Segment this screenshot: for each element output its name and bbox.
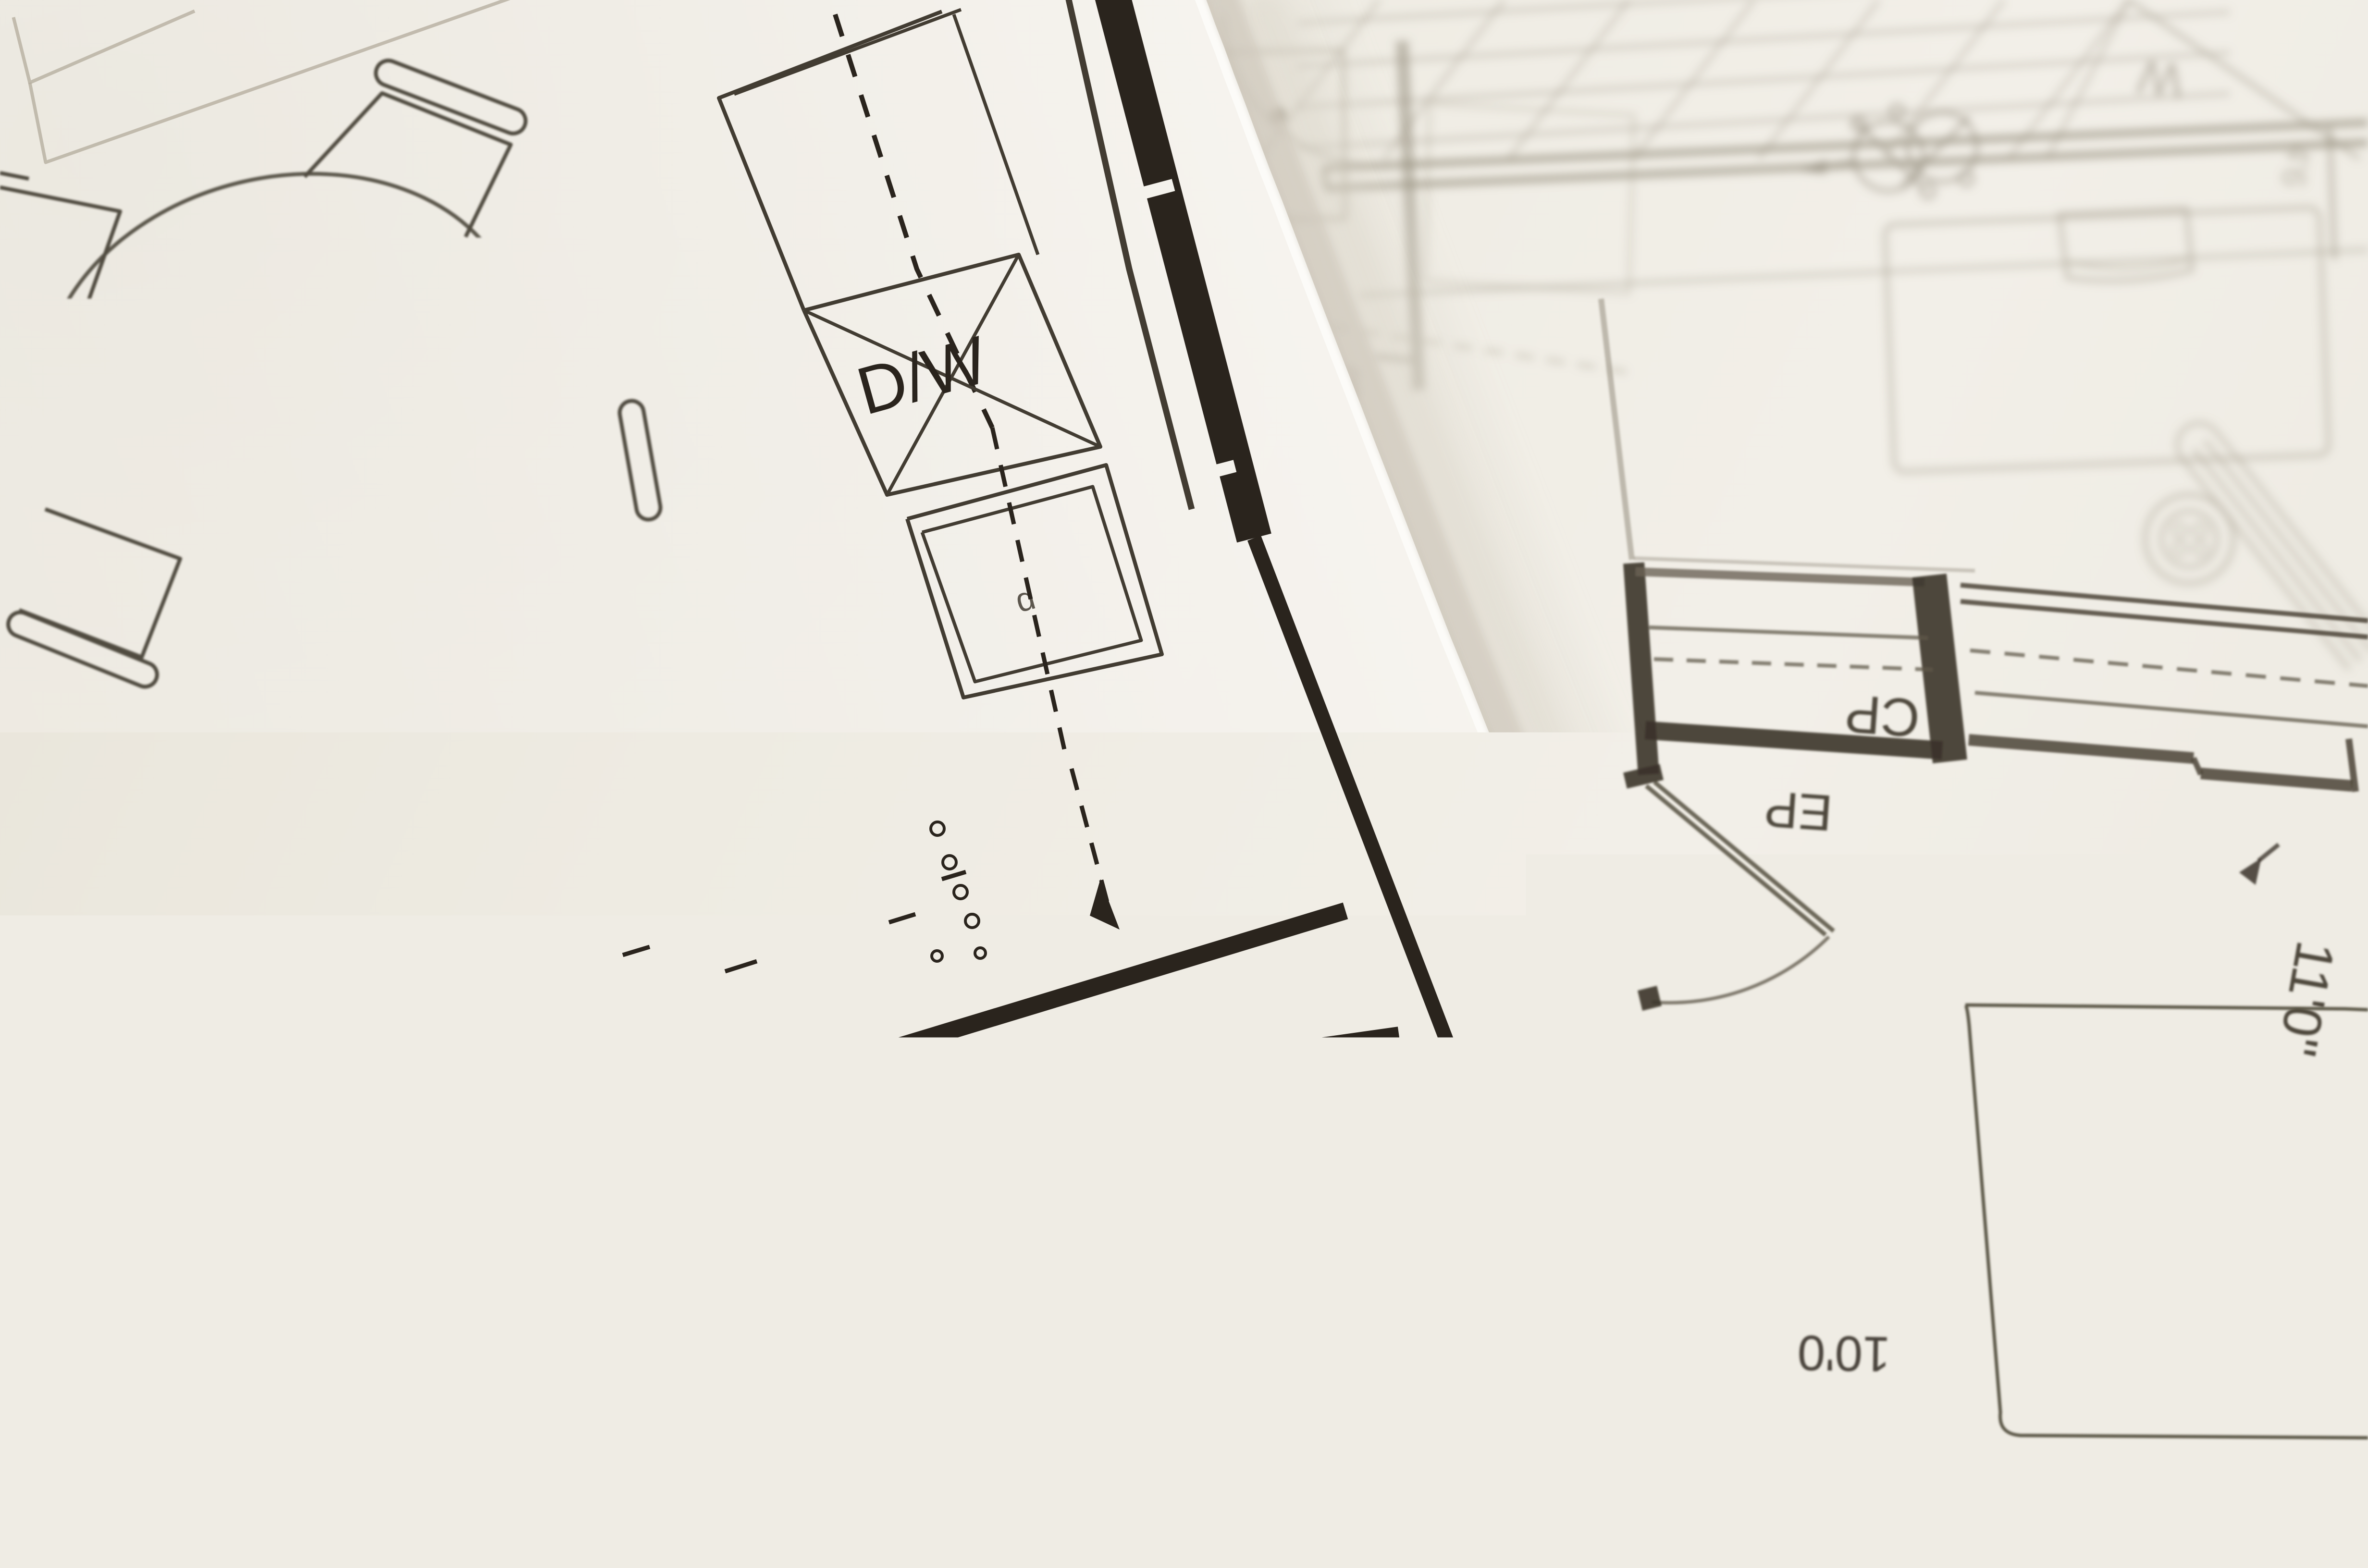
- svg-text:W: W: [2134, 49, 2186, 108]
- svg-text:4'6: 4'6: [2274, 140, 2319, 190]
- svg-text:CP: CP: [1843, 684, 1922, 749]
- svg-text:EP: EP: [1763, 780, 1834, 842]
